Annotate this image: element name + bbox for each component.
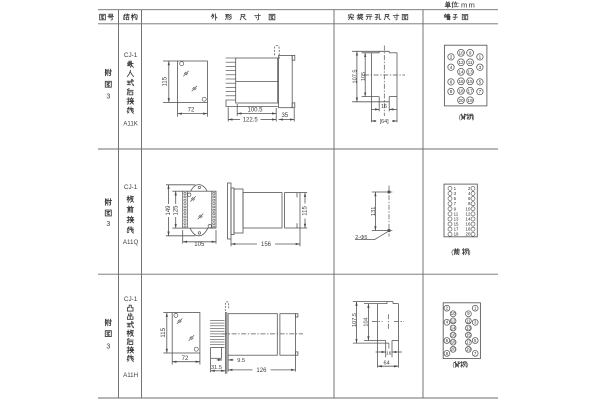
svg-text:125: 125 <box>173 205 179 216</box>
svg-text:10: 10 <box>458 50 464 55</box>
svg-text:18: 18 <box>451 340 456 345</box>
svg-text:3: 3 <box>106 343 110 350</box>
svg-text:107.5: 107.5 <box>352 70 358 84</box>
svg-text:3: 3 <box>479 65 482 70</box>
svg-text:122.5: 122.5 <box>243 117 259 123</box>
svg-text:156: 156 <box>261 242 272 248</box>
svg-text:19: 19 <box>468 98 474 103</box>
svg-text:105: 105 <box>194 242 205 248</box>
svg-text:12: 12 <box>458 60 464 65</box>
svg-text:7: 7 <box>474 351 477 356</box>
svg-text:15: 15 <box>468 79 474 84</box>
svg-text:19: 19 <box>466 347 471 352</box>
svg-text:13: 13 <box>466 325 471 330</box>
svg-text:115: 115 <box>161 327 167 337</box>
svg-text:4: 4 <box>450 65 453 70</box>
svg-text:1: 1 <box>479 55 482 60</box>
svg-text:): ) <box>472 114 474 121</box>
svg-text:20: 20 <box>451 347 456 352</box>
svg-text:14: 14 <box>458 69 464 74</box>
svg-text:16: 16 <box>381 104 387 110</box>
svg-text:A11H: A11H <box>123 372 138 379</box>
svg-text:7: 7 <box>479 89 482 94</box>
svg-text:4: 4 <box>446 320 449 325</box>
svg-text:12: 12 <box>451 318 456 323</box>
svg-text:3: 3 <box>106 221 110 228</box>
svg-text:5: 5 <box>474 338 477 343</box>
svg-text:10: 10 <box>451 311 456 316</box>
svg-text:A11Q: A11Q <box>123 239 139 246</box>
svg-text:mm: mm <box>461 0 476 9</box>
svg-text:107.5: 107.5 <box>352 313 358 327</box>
svg-text:14: 14 <box>451 325 456 330</box>
svg-text:2-Φ5: 2-Φ5 <box>355 235 367 241</box>
svg-text:): ) <box>466 362 468 369</box>
svg-text:16: 16 <box>386 350 392 355</box>
svg-text:115: 115 <box>303 206 309 216</box>
svg-text:CJ-1: CJ-1 <box>124 184 138 191</box>
svg-text:20: 20 <box>466 232 471 237</box>
svg-text:13: 13 <box>468 69 474 74</box>
svg-text:CJ-1: CJ-1 <box>124 296 138 303</box>
svg-text:2: 2 <box>450 55 453 60</box>
svg-text::: : <box>458 2 460 9</box>
svg-text:16: 16 <box>458 79 464 84</box>
svg-text:A11K: A11K <box>123 120 139 127</box>
svg-text:31.5: 31.5 <box>211 365 222 371</box>
svg-text:35: 35 <box>281 113 288 119</box>
svg-text:9: 9 <box>467 311 470 316</box>
svg-text:131: 131 <box>371 207 377 216</box>
svg-text:): ) <box>468 249 470 256</box>
svg-text:72: 72 <box>188 108 195 114</box>
svg-text:115: 115 <box>163 76 169 86</box>
svg-text:6: 6 <box>446 338 449 343</box>
svg-text:11: 11 <box>468 60 473 65</box>
svg-text:17: 17 <box>466 340 471 345</box>
svg-text:3: 3 <box>474 320 477 325</box>
svg-text:17: 17 <box>468 88 474 93</box>
svg-text:2: 2 <box>446 306 449 311</box>
svg-text:5: 5 <box>479 80 482 85</box>
svg-text:[64]: [64] <box>380 119 389 125</box>
svg-text:1: 1 <box>474 306 477 311</box>
svg-text:15: 15 <box>466 333 471 338</box>
svg-text:16: 16 <box>451 333 456 338</box>
svg-text:126: 126 <box>256 368 267 374</box>
svg-text:8: 8 <box>446 351 449 356</box>
svg-text:19: 19 <box>454 232 459 237</box>
svg-text:9.5: 9.5 <box>237 358 245 364</box>
svg-text:64: 64 <box>383 360 389 366</box>
svg-text:9: 9 <box>469 50 472 55</box>
svg-text:105: 105 <box>361 72 367 81</box>
svg-text:3: 3 <box>106 93 110 100</box>
svg-text:72: 72 <box>182 356 189 362</box>
svg-text:149: 149 <box>166 205 172 216</box>
svg-text:100.5: 100.5 <box>247 108 263 114</box>
svg-text:104: 104 <box>364 317 370 326</box>
svg-text:18: 18 <box>458 88 464 93</box>
svg-text:8: 8 <box>450 89 453 94</box>
svg-text:11: 11 <box>466 318 471 323</box>
svg-text:6: 6 <box>450 80 453 85</box>
svg-text:20: 20 <box>458 98 464 103</box>
svg-text:CJ-1: CJ-1 <box>124 52 138 59</box>
